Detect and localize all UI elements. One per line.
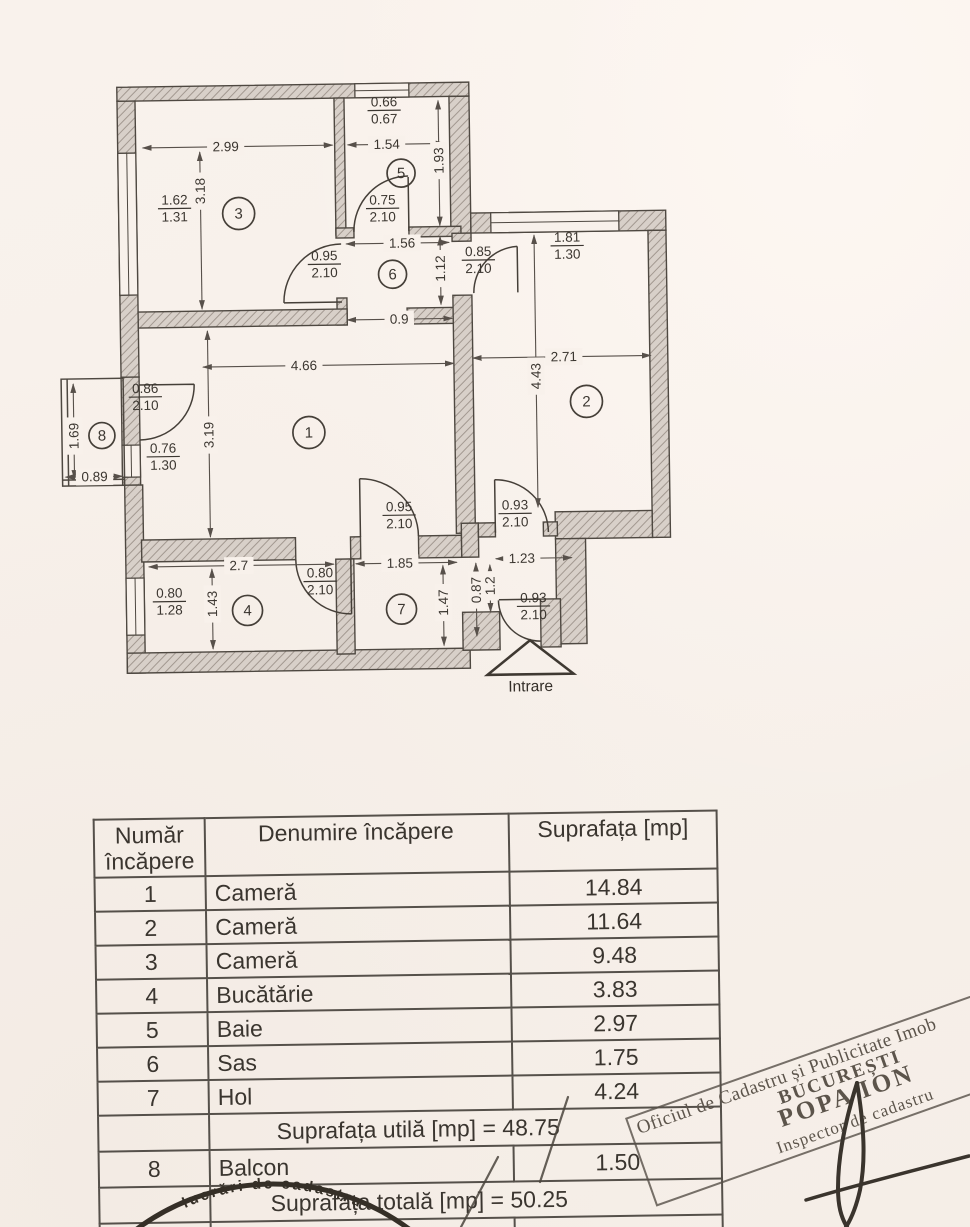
dimension-label: 1.12 — [432, 250, 450, 287]
svg-text:2.99: 2.99 — [212, 139, 239, 154]
dimension-label: 1.93 — [430, 142, 448, 179]
dimension-label: 1.2 — [481, 571, 498, 601]
svg-text:2.10: 2.10 — [132, 398, 159, 413]
entrance-label: Intrare — [508, 678, 553, 696]
svg-text:2.10: 2.10 — [502, 514, 529, 529]
svg-text:2.10: 2.10 — [369, 209, 396, 224]
dimension-label: 3.19 — [200, 416, 218, 453]
svg-text:0.95: 0.95 — [386, 499, 413, 514]
opening-size-label: 0.952.10 — [382, 499, 416, 531]
svg-text:4.43: 4.43 — [528, 363, 543, 390]
cell-room-name: Cameră — [206, 906, 510, 945]
dimension-label: 0.89 — [76, 468, 113, 486]
dimension-label: 2.99 — [207, 138, 244, 156]
svg-text:2.71: 2.71 — [551, 349, 578, 364]
svg-text:3.19: 3.19 — [201, 422, 216, 449]
cell-number: 4 — [96, 978, 207, 1014]
cell-area: 14.84 — [509, 869, 717, 906]
cell-number: 1 — [94, 876, 205, 912]
cell-room-name: Cameră — [205, 872, 509, 911]
svg-text:0.66: 0.66 — [371, 94, 398, 109]
svg-text:1.81: 1.81 — [554, 229, 581, 244]
dimension-label: 1.56 — [383, 234, 420, 252]
svg-text:0.9: 0.9 — [390, 312, 409, 327]
dimension-label: 1.69 — [65, 417, 83, 454]
svg-text:2: 2 — [582, 393, 591, 410]
svg-text:2.10: 2.10 — [311, 265, 338, 280]
cell-area: 2.97 — [511, 1004, 719, 1041]
opening-size-label: 1.621.31 — [158, 192, 192, 224]
dimension-label: 1.47 — [435, 584, 453, 621]
opening-size-label: 0.932.10 — [517, 590, 551, 622]
svg-text:1.43: 1.43 — [205, 591, 220, 618]
dimension-label: 3.18 — [192, 172, 210, 209]
opening-size-label: 0.660.67 — [367, 94, 401, 126]
col-header-number: Număr încăpere — [94, 818, 206, 878]
svg-text:2.10: 2.10 — [386, 516, 413, 531]
dimension-label: 1.54 — [368, 136, 405, 154]
svg-text:2.10: 2.10 — [465, 261, 492, 276]
dimension-label: 2.71 — [545, 348, 582, 366]
col-header-name: Denumire încăpere — [205, 814, 510, 877]
room-number-badge: 4 — [232, 595, 262, 625]
svg-text:0.93: 0.93 — [502, 497, 529, 512]
svg-text:4: 4 — [243, 602, 252, 619]
svg-text:0.76: 0.76 — [150, 440, 177, 455]
room-areas-table: Număr încăpere Denumire încăpere Suprafa… — [93, 809, 724, 1227]
scanned-document-page: Intrare 2.991.541.931.123.181.560.94.662… — [0, 0, 970, 1227]
svg-text:1.30: 1.30 — [554, 246, 581, 261]
svg-text:4.66: 4.66 — [291, 358, 318, 373]
dimension-label: 1.85 — [381, 554, 418, 572]
cell-number: 5 — [97, 1012, 208, 1048]
dimension-label: 1.43 — [204, 585, 222, 622]
opening-size-label: 0.852.10 — [462, 244, 496, 276]
room-number-badge: 7 — [386, 594, 416, 624]
svg-text:1.47: 1.47 — [436, 589, 451, 616]
cell-area: 3.83 — [511, 970, 719, 1007]
floor-plan-svg: Intrare 2.991.541.931.123.181.560.94.662… — [0, 0, 970, 777]
svg-text:0.93: 0.93 — [520, 590, 547, 605]
dimension-label: 1.23 — [503, 550, 540, 568]
svg-text:1: 1 — [305, 424, 314, 441]
svg-text:1.23: 1.23 — [509, 551, 536, 566]
svg-text:0.85: 0.85 — [465, 244, 492, 259]
col-header-area: Suprafața [mp] — [509, 811, 718, 872]
dimension-label: 2.7 — [224, 557, 254, 574]
svg-text:2.10: 2.10 — [307, 582, 334, 597]
svg-text:0.80: 0.80 — [307, 565, 334, 580]
svg-text:3: 3 — [234, 205, 243, 222]
svg-text:1.69: 1.69 — [66, 423, 81, 450]
scan-tilt-wrapper: Intrare 2.991.541.931.123.181.560.94.662… — [0, 0, 970, 1227]
cell-number: 6 — [97, 1046, 208, 1082]
opening-size-label: 0.952.10 — [308, 248, 342, 280]
cell-area: 1.75 — [512, 1038, 720, 1075]
svg-text:0.80: 0.80 — [156, 585, 183, 600]
svg-text:1.28: 1.28 — [156, 602, 183, 617]
svg-text:7: 7 — [397, 601, 406, 618]
room-number-badge: 1 — [293, 416, 325, 448]
svg-text:5: 5 — [397, 165, 406, 182]
opening-size-label: 0.862.10 — [129, 381, 163, 413]
dimension-label: 4.66 — [285, 357, 322, 375]
room-number-badge: 3 — [222, 197, 254, 229]
svg-text:1.62: 1.62 — [161, 192, 188, 207]
opening-size-label: 0.761.30 — [146, 440, 180, 472]
opening-size-label: 1.811.30 — [550, 229, 584, 261]
cell-room-name: Hol — [208, 1076, 512, 1115]
svg-text:1.30: 1.30 — [150, 457, 177, 472]
room-number-badge: 6 — [378, 260, 406, 288]
cell-room-name: Cameră — [206, 940, 510, 979]
opening-size-label: 0.802.10 — [303, 565, 337, 597]
room-number-badge: 8 — [89, 422, 115, 448]
cell-area: 9.48 — [510, 936, 718, 973]
opening-size-label: 0.932.10 — [498, 497, 532, 529]
room-number-badge: 2 — [570, 385, 602, 417]
svg-text:1.2: 1.2 — [483, 576, 498, 595]
svg-text:0.67: 0.67 — [371, 111, 398, 126]
cell-room-name: Sas — [208, 1042, 512, 1081]
dimension-line — [203, 363, 454, 367]
cell-room-name: Bucătărie — [207, 974, 511, 1013]
svg-text:2.10: 2.10 — [520, 607, 547, 622]
room-number-badge: 5 — [387, 159, 415, 187]
svg-text:1.54: 1.54 — [373, 137, 400, 152]
cell-number: 3 — [95, 944, 206, 980]
dimension-label: 0.9 — [384, 310, 414, 327]
svg-text:8: 8 — [98, 428, 107, 445]
opening-size-label: 0.752.10 — [366, 192, 400, 224]
svg-text:1.56: 1.56 — [389, 235, 416, 250]
svg-text:3.18: 3.18 — [193, 178, 208, 205]
svg-text:1.93: 1.93 — [431, 147, 446, 174]
cell-number: 2 — [95, 910, 206, 946]
svg-text:6: 6 — [388, 266, 397, 283]
cell-area: 11.64 — [510, 902, 718, 939]
dimension-label: 4.43 — [527, 357, 545, 394]
cell-number: 8 — [99, 1150, 211, 1188]
svg-text:0.89: 0.89 — [81, 469, 108, 484]
cell-number: 7 — [98, 1080, 209, 1116]
svg-text:1.31: 1.31 — [161, 209, 188, 224]
svg-text:0.75: 0.75 — [369, 192, 396, 207]
svg-text:0.86: 0.86 — [132, 381, 159, 396]
opening-size-label: 0.801.28 — [153, 585, 187, 617]
cell-room-name: Baie — [207, 1008, 511, 1047]
cell-room-name: Balcon — [210, 1146, 515, 1187]
svg-text:1.12: 1.12 — [433, 255, 448, 282]
svg-text:1.85: 1.85 — [387, 555, 414, 570]
svg-text:2.7: 2.7 — [229, 558, 248, 573]
table-header-row: Număr încăpere Denumire încăpere Suprafa… — [94, 811, 718, 878]
svg-text:0.95: 0.95 — [311, 248, 338, 263]
